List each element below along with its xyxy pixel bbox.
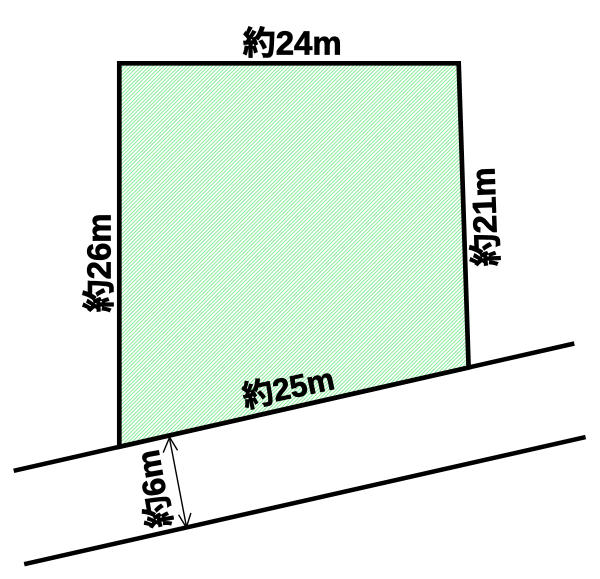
svg-text:24m: 24m [276, 25, 342, 62]
svg-text:21m: 21m [464, 167, 503, 234]
svg-text:26m: 26m [81, 213, 118, 279]
